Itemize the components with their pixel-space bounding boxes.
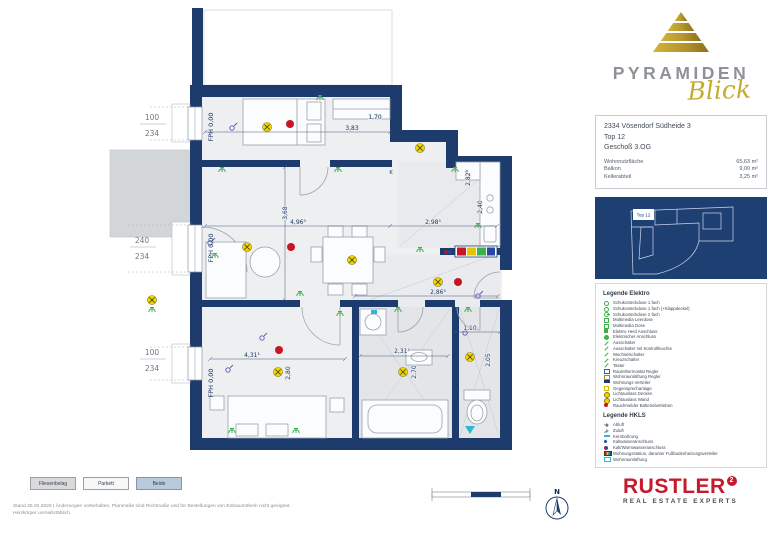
keyplan-highlight-label: Top 12 xyxy=(637,213,651,218)
unit-address: 2334 Vösendorf Südheide 3 xyxy=(604,122,758,133)
legend-item-label: Lichtauslass Decken xyxy=(613,391,652,396)
legend-item-label: Rauchmelder Batteriebetrieben xyxy=(613,403,672,408)
legend-item-label: Abluft xyxy=(613,422,624,427)
brand-logo: PYRAMIDEN Blick xyxy=(595,12,767,106)
area-row-label: Balkon xyxy=(604,166,621,174)
area-row: Balkon9,00 m² xyxy=(604,166,758,174)
unit-info-box: 2334 Vösendorf Südheide 3 Top 12 Geschoß… xyxy=(595,115,767,189)
keyplan: Top 12 xyxy=(595,197,767,279)
area-row: Kellerabteil3,25 m² xyxy=(604,174,758,182)
dim-top-niche: 1,70 xyxy=(368,114,382,121)
legend-item-label: Kreuzschalter xyxy=(613,357,639,362)
svg-text:234: 234 xyxy=(135,252,150,261)
rustler-logo: RUSTLER2 REAL ESTATE EXPERTS xyxy=(595,477,767,505)
dim-living-height: 3,68 xyxy=(282,206,289,220)
legend-elektro-title: Legende Elektro xyxy=(603,291,759,297)
footer-line-2: Heizkörper unmaßstäblich. xyxy=(13,510,433,517)
flooring-both-button[interactable]: Beide xyxy=(136,477,182,490)
legend-item-label: Kaltwasseranschluss xyxy=(613,439,653,444)
flooring-toolbar: FliesenbelagParkettBeide xyxy=(30,477,182,490)
dim-living-width: 4,96⁵ xyxy=(290,219,306,226)
rustler-name: RUSTLER2 xyxy=(623,477,767,497)
legend-item-label: Gegensprechanlage xyxy=(613,386,652,391)
pyramid-logo-icon xyxy=(651,12,711,54)
legend-item-label: Lichtauslass Wand xyxy=(613,397,649,402)
fph-label-3: FPH 0,00 xyxy=(207,368,215,397)
legend-box: Legende Elektro Schukosteckdose 1 fachSc… xyxy=(595,283,767,468)
wrl-icon xyxy=(603,456,610,462)
legend-item-label: Schukosteckdose 2 fach xyxy=(613,312,660,317)
legend-item-label: Wohnraumlüftung Regler xyxy=(613,374,661,379)
svg-text:234: 234 xyxy=(145,129,160,138)
dim-dining-width: 2,98⁵ xyxy=(425,219,441,226)
neighbor-outline xyxy=(204,10,392,85)
legend-item-label: Wechselschalter xyxy=(613,352,644,357)
legend-item-label: Wohnungsstation, darunter Fußbodenheizun… xyxy=(613,451,718,456)
legend-item-label: Kalt/Warmwasseranschluss xyxy=(613,445,666,450)
unit-floor: Geschoß 3.OG xyxy=(604,143,758,154)
legend-item-label: Wohnraumlüftung xyxy=(613,457,647,462)
footer-line-1: Stand 25.02.2025 | Änderungen vorbehalte… xyxy=(13,503,433,510)
dim-bedroom-width: 4,31¹ xyxy=(244,352,260,359)
north-compass-icon: N xyxy=(546,488,568,519)
area-row-label: Kellerabteil xyxy=(604,174,631,182)
area-row-value: 9,00 m² xyxy=(739,166,758,174)
legend-item-label: Ausschalter xyxy=(613,340,635,345)
legend-item-label: Ausschalter mit Kontrollleuchte xyxy=(613,346,672,351)
legend-item-label: Elektro Herd Anschluss xyxy=(613,329,657,334)
legend-item-label: Kernbohrung xyxy=(613,434,638,439)
area-row: Wohnnutzfläche65,63 m² xyxy=(604,159,758,167)
dim-wc-height: 2,05 xyxy=(485,353,492,367)
scale-bar xyxy=(432,488,530,501)
legend-item-label: Multimedia Leerdose xyxy=(613,317,653,322)
legend-hkls-title: Legende HKLS xyxy=(603,413,759,419)
unit-number: Top 12 xyxy=(604,133,758,144)
north-label: N xyxy=(554,488,560,496)
keyplan-map: Top 12 xyxy=(595,197,765,279)
dim-kitchen-h1: 2,82⁵ xyxy=(465,170,472,186)
area-row-value: 3,25 m² xyxy=(739,174,758,182)
dim-kitchen-h2: 2,40 xyxy=(477,200,484,214)
dim-hall-width: 2,86⁵ xyxy=(430,289,446,296)
legend-item-label: Multimedia Dose xyxy=(613,323,645,328)
rauch-icon xyxy=(603,402,610,408)
legend-item-label: Taster xyxy=(613,363,625,368)
area-row-label: Wohnnutzfläche xyxy=(604,159,643,167)
dim-bath-height: 2,70 xyxy=(411,365,418,379)
dim-bedroom-height: 2,80 xyxy=(285,366,292,380)
brand-subtitle: Blick xyxy=(595,74,768,109)
sidebar: PYRAMIDEN Blick 2334 Vösendorf Südheide … xyxy=(595,12,767,505)
area-row-value: 65,63 m² xyxy=(736,159,758,167)
legend-item-label: Zuluft xyxy=(613,428,624,433)
svg-text:100: 100 xyxy=(145,113,160,122)
legend-item: Rauchmelder Batteriebetrieben xyxy=(603,402,759,408)
legend-item-label: Wohnungs Verteiler xyxy=(613,380,650,385)
flooring-parquet-button[interactable]: Parkett xyxy=(83,477,129,490)
area-table: Wohnnutzfläche65,63 m²Balkon9,00 m²Kelle… xyxy=(604,159,758,182)
legend-item-label: Schukosteckdose 1 fach xyxy=(613,300,660,305)
rustler-tagline: REAL ESTATE EXPERTS xyxy=(623,498,767,505)
svg-text:234: 234 xyxy=(145,364,160,373)
flooring-tile-button[interactable]: Fliesenbelag xyxy=(30,477,76,490)
legend-item-label: Schukosteckdose 1 fach (+Klappdeckel) xyxy=(613,306,690,311)
dim-wc-width: 1,10 xyxy=(463,325,477,332)
fph-label-2: FPH 0,00 xyxy=(207,233,215,262)
rustler-mark-icon: 2 xyxy=(727,476,737,486)
legend-item-label: Raumthermostat Regler xyxy=(613,369,659,374)
fph-label-1: FPH 0,00 xyxy=(207,112,215,141)
legend-hkls-list: AbluftZuluftKernbohrungKaltwasseranschlu… xyxy=(603,422,759,462)
svg-text:240: 240 xyxy=(135,236,150,245)
legend-elektro-list: Schukosteckdose 1 fachSchukosteckdose 1 … xyxy=(603,300,759,408)
footer-disclaimer: Stand 25.02.2025 | Änderungen vorbehalte… xyxy=(13,503,433,517)
dim-bath-width: 2,31⁵ xyxy=(394,348,410,355)
legend-item-label: Elektrischer Anschluss xyxy=(613,334,656,339)
legend-item: Wohnraumlüftung xyxy=(603,456,759,462)
dim-top-width: 3,83 xyxy=(345,125,359,132)
svg-text:100: 100 xyxy=(145,348,160,357)
